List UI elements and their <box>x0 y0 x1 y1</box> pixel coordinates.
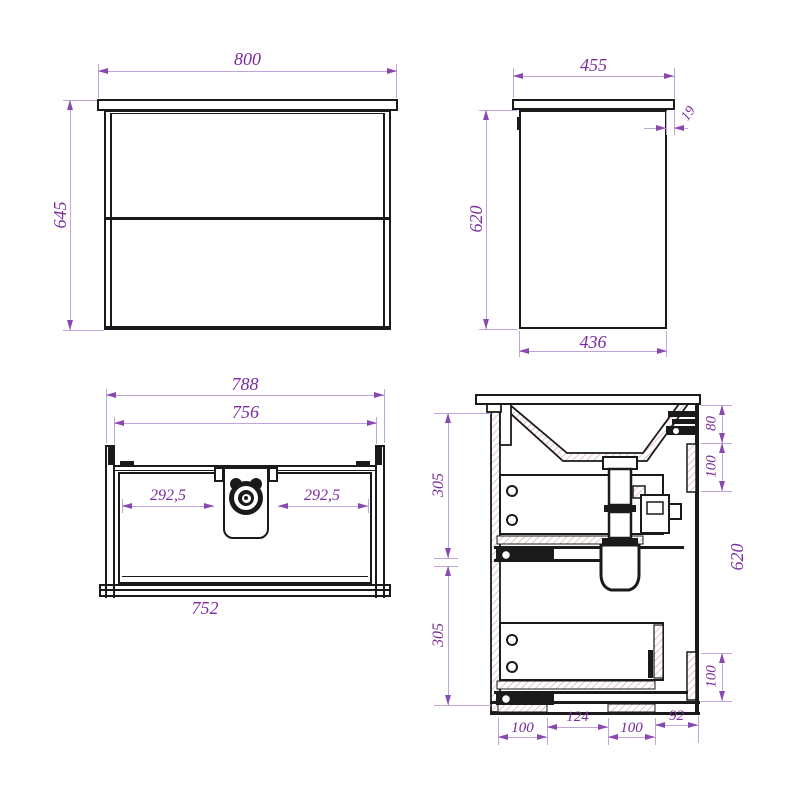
valve-detail <box>647 502 663 514</box>
dim-label-plan-left-offset: 292,5 <box>122 488 214 504</box>
dim-arrowhead <box>445 695 451 705</box>
bottom-rail-line <box>101 589 389 591</box>
ext-line <box>698 716 699 743</box>
corner-bracket <box>376 447 382 465</box>
dim-line <box>513 76 674 77</box>
dim-arrowhead <box>719 481 725 491</box>
ext-line <box>674 68 675 98</box>
ext-line <box>666 111 667 135</box>
drawer-hole <box>507 515 517 525</box>
bracket-hole <box>673 428 679 434</box>
dim-label-top-gap: 80 <box>705 404 720 444</box>
wall-rail-top <box>687 444 696 492</box>
basin-top <box>476 395 700 404</box>
slide-rail-hatch <box>497 681 655 689</box>
top-inner-line <box>112 113 383 114</box>
dim-label-plan-outer-width: 788 <box>106 375 384 393</box>
drawer-hole <box>507 662 517 672</box>
dim-arrowhead <box>67 100 73 110</box>
outlet-stub <box>669 504 681 519</box>
drain-fitting-center <box>244 496 248 500</box>
dim-label-side-top-width: 455 <box>513 56 674 74</box>
rail-clip <box>120 461 134 466</box>
ext-line <box>434 413 491 414</box>
cabinet-body <box>519 110 667 329</box>
dim-line <box>278 506 368 507</box>
dim-label-side-overhang: 19 <box>675 98 704 131</box>
hinge-mark <box>517 117 521 130</box>
plinth-foot-right <box>608 704 655 712</box>
bracket-bar <box>672 419 698 424</box>
bracket-bar <box>668 411 698 417</box>
dim-label-upper-drawer: 305 <box>431 447 447 523</box>
cabinet-body <box>104 110 391 330</box>
dim-line <box>448 413 449 558</box>
ext-line <box>479 329 517 330</box>
dim-line <box>114 423 377 424</box>
dim-label-right-gap: 92 <box>655 709 698 724</box>
dim-label-foot-left: 100 <box>498 721 547 736</box>
trap-cup <box>601 545 639 590</box>
drawer-panel <box>500 623 663 680</box>
dim-arrowhead <box>719 653 725 663</box>
dim-label-side-body-width: 436 <box>519 333 667 351</box>
dim-label-plan-bottom-width: 752 <box>145 599 265 617</box>
dim-arrowhead <box>445 548 451 558</box>
dim-arrowhead <box>719 691 725 701</box>
drawer-divider <box>106 217 389 220</box>
wall-line <box>113 445 115 598</box>
dim-line <box>122 506 214 507</box>
ext-line <box>368 499 369 513</box>
drawer-back-hatch <box>654 625 663 678</box>
ext-line <box>701 491 732 492</box>
ext-line <box>434 558 458 559</box>
dim-arrowhead <box>656 125 666 131</box>
dim-label-side-height: 620 <box>467 181 485 257</box>
basin-bowl-wall <box>500 404 688 461</box>
dim-label-front-height: 645 <box>51 177 69 253</box>
dim-arrowhead <box>445 413 451 423</box>
dim-arrowhead <box>445 566 451 576</box>
dim-label-front-width: 800 <box>98 50 397 68</box>
dim-label-center-gap: 124 <box>547 710 608 725</box>
dim-arrowhead <box>483 110 489 120</box>
dim-label-foot-right: 100 <box>608 721 655 736</box>
wall-line <box>105 445 107 598</box>
drain-pipe <box>609 512 631 538</box>
dim-label-plan-inner-width: 756 <box>114 403 377 421</box>
drawer-bottom-line <box>122 576 368 577</box>
slide-rail-bar <box>494 691 688 694</box>
dim-arrowhead <box>387 68 397 74</box>
wall-line <box>383 445 385 598</box>
drawer-back-bar <box>648 650 653 678</box>
drawer-hole <box>507 486 517 496</box>
ext-line <box>701 701 732 702</box>
slide-wheel <box>502 695 511 704</box>
dim-label-rail-bottom: 100 <box>705 653 720 701</box>
dim-line <box>70 100 71 330</box>
dim-label-rail-top: 100 <box>705 443 720 491</box>
slide-wheel <box>502 551 511 560</box>
ext-line <box>434 705 491 706</box>
rail-clip <box>356 461 370 466</box>
drawer-panel <box>500 475 663 534</box>
technical-drawing-page: { "drawing": { "front_view": { "width": … <box>0 0 800 800</box>
drain-flange <box>603 457 637 469</box>
bracket-bar <box>666 426 698 435</box>
dim-line <box>98 71 397 72</box>
dim-label-lower-drawer: 305 <box>431 597 447 673</box>
corner-bracket <box>108 447 114 465</box>
slide-rail-bar <box>494 546 684 549</box>
section-view-geometry <box>450 380 710 725</box>
drawer-hole <box>507 635 517 645</box>
dim-label-plan-right-offset: 292,5 <box>276 488 368 504</box>
dim-line <box>486 110 487 329</box>
plinth-foot-left <box>498 704 547 712</box>
dim-label-section-height: 620 <box>728 519 746 595</box>
drawer-lower <box>494 623 688 705</box>
drain-pipe <box>609 469 631 505</box>
wall-line <box>375 445 377 598</box>
dim-arrowhead <box>719 433 725 443</box>
dim-arrowhead <box>719 443 725 453</box>
ext-line <box>63 330 104 331</box>
dim-line <box>106 395 384 396</box>
dim-arrowhead <box>67 320 73 330</box>
basin-lip-step <box>487 404 501 412</box>
countertop <box>512 99 675 110</box>
dim-arrowhead <box>483 319 489 329</box>
dim-line <box>448 566 449 705</box>
wall-rail-bottom <box>687 652 696 700</box>
dim-arrowhead <box>98 68 108 74</box>
siphon-plate-tab <box>268 467 278 482</box>
ext-line <box>384 389 385 443</box>
dim-arrowhead <box>719 405 725 415</box>
